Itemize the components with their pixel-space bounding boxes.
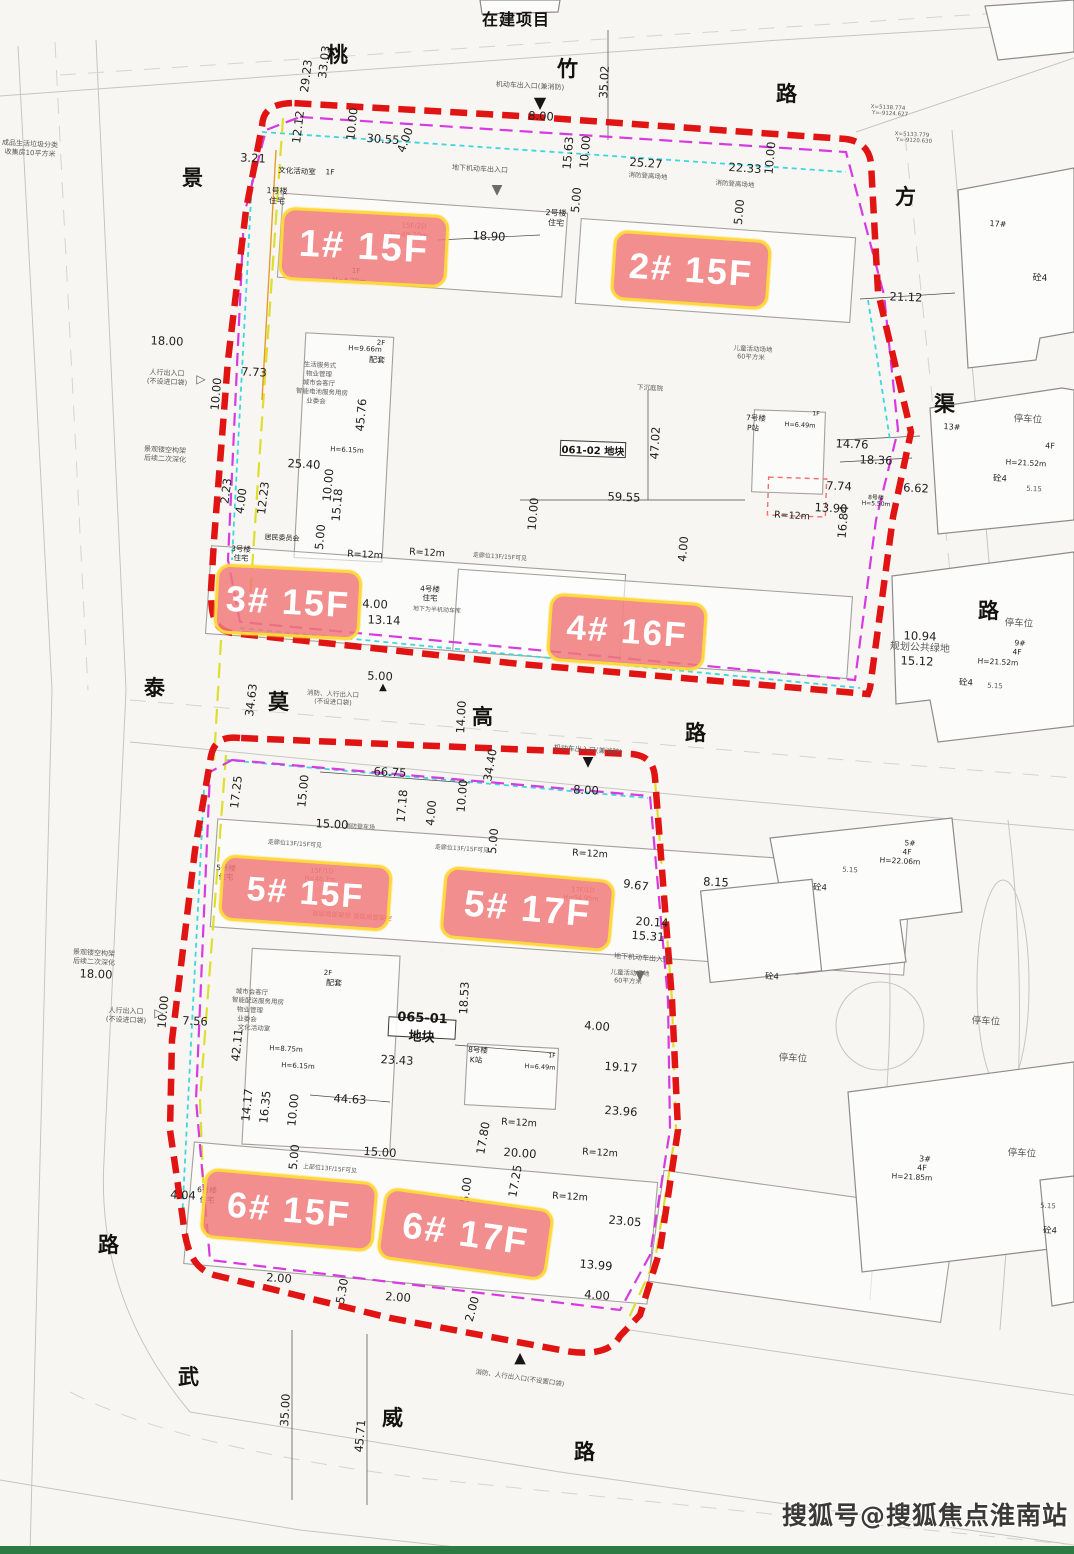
- annotation: 5.15: [842, 866, 858, 875]
- dimension-label: 4.00: [362, 597, 388, 612]
- annotation: 砼4: [1043, 1224, 1058, 1237]
- dimension-label: 10.00: [762, 141, 779, 175]
- dimension-label: 22.33: [728, 160, 762, 176]
- annotation: 4F: [902, 847, 912, 856]
- annotation: K站: [470, 1054, 483, 1066]
- annotation: P站: [747, 422, 760, 434]
- dimension-label: 59.55: [607, 489, 640, 504]
- dimension-label: 35.00: [277, 1393, 293, 1427]
- dimension-label: 10.00: [577, 135, 594, 169]
- annotation: 4F: [917, 1163, 927, 1172]
- building-label: 5# 17F: [439, 866, 616, 953]
- annotation: 停车位: [778, 1049, 807, 1064]
- dimension-label: R=12m: [774, 510, 810, 523]
- annotation: H=6.15m: [330, 445, 364, 455]
- annotation: 砼4: [765, 970, 780, 983]
- annotation: H=6.15m: [281, 1061, 315, 1071]
- annotation: 1F: [325, 167, 335, 176]
- annotation: 13#: [943, 422, 960, 432]
- road-label: 武: [178, 1361, 200, 1391]
- dimension-label: 5.00: [286, 1144, 303, 1171]
- dimension-label: 17.18: [394, 789, 411, 823]
- road-label: 路: [978, 595, 1000, 625]
- annotation: 配套: [326, 977, 343, 989]
- dimension-label: 7.74: [826, 479, 852, 494]
- dimension-label: 47.02: [647, 426, 663, 460]
- annotation: 停车位: [1004, 614, 1033, 629]
- dimension-label: 8.00: [573, 782, 599, 797]
- road-label: 方: [895, 181, 917, 211]
- annotation: 5.15: [1026, 485, 1042, 494]
- building-label: 5# 15F: [218, 854, 393, 932]
- dimension-label: R=12m: [347, 549, 383, 562]
- dimension-label: 23.96: [604, 1103, 638, 1119]
- dimension-label: 3.21: [240, 150, 266, 165]
- annotation: H=8.75m: [269, 1044, 303, 1054]
- dimension-label: 18.53: [456, 981, 472, 1015]
- dimension-label: R=12m: [552, 1191, 588, 1204]
- dimension-label: 18.90: [472, 228, 506, 244]
- site-plan-linework: [0, 0, 1074, 1554]
- building-label: 3# 15F: [213, 563, 362, 641]
- annotation: 砼4: [959, 676, 974, 689]
- annotation: 住宅: [548, 217, 565, 229]
- road-label: 泰: [144, 672, 166, 702]
- entrance-arrow-icon: ▷: [196, 373, 205, 385]
- dimension-label: 4.00: [584, 1287, 611, 1303]
- building-label: 2# 15F: [610, 230, 772, 311]
- dimension-label: R=12m: [582, 1147, 618, 1160]
- road-label: 在建项目: [482, 6, 550, 30]
- dimension-label: 4.00: [675, 536, 691, 563]
- dimension-label: 15.31: [631, 928, 665, 944]
- watermark: 搜狐号@搜狐焦点淮南站: [782, 1496, 1068, 1532]
- annotation: (不设进口袋): [314, 695, 352, 707]
- annotation: 下沉庭院: [637, 381, 663, 392]
- annotation: H=9.66m: [348, 344, 382, 354]
- annotation: 3#: [919, 1154, 931, 1164]
- annotation: 住宅: [233, 552, 249, 564]
- dimension-label: 19.17: [604, 1059, 638, 1075]
- annotation: 停车位: [971, 1012, 1000, 1027]
- dimension-label: 8.15: [703, 874, 729, 889]
- site-plan-canvas: 搜狐号@搜狐焦点淮南站 1# 15F2# 15F3# 15F4# 16F5# 1…: [0, 0, 1074, 1554]
- dimension-label: 15.18: [329, 488, 346, 522]
- bottom-green-bar: [0, 1546, 1074, 1554]
- annotation: 居民委员会: [264, 532, 299, 544]
- building-label: 6# 15F: [199, 1168, 378, 1253]
- entrance-arrow-icon: ▲: [379, 683, 387, 693]
- dimension-label: 15.63: [560, 136, 577, 170]
- entrance-arrow-icon: ▷: [154, 1007, 163, 1019]
- annotation: 文化活动室: [278, 165, 316, 178]
- annotation: 17#: [989, 219, 1006, 229]
- annotation: (不设进口袋): [106, 1014, 147, 1026]
- annotation: 砼4: [1032, 270, 1047, 284]
- road-label: 高: [472, 701, 494, 731]
- annotation: 60平方米: [737, 350, 765, 361]
- dimension-label: R=12m: [572, 848, 608, 861]
- annotation: 砼4: [813, 881, 828, 894]
- dimension-label: 16.84: [835, 505, 852, 539]
- dimension-label: 23.43: [380, 1052, 414, 1068]
- dimension-label: 66.75: [373, 764, 407, 780]
- road-label: 路: [98, 1229, 120, 1259]
- dimension-label: R=12m: [409, 547, 445, 560]
- dimension-label: 18.00: [79, 966, 112, 981]
- dimension-label: 10.00: [208, 377, 225, 411]
- dimension-label: 23.05: [608, 1213, 642, 1230]
- building-label: 1# 15F: [278, 207, 450, 289]
- dimension-label: 25.27: [629, 155, 663, 171]
- annotation: 住宅: [269, 195, 286, 207]
- dimension-label: 6.62: [903, 480, 929, 495]
- road-label: 渠: [934, 388, 956, 418]
- annotation: 配套: [369, 354, 386, 366]
- dimension-label: 5.00: [731, 199, 747, 226]
- annotation: 砼4: [993, 472, 1008, 485]
- dimension-label: 5.00: [485, 828, 501, 855]
- annotation: 停车位: [1007, 1144, 1036, 1159]
- plot-label: 061-02 地块: [560, 440, 627, 458]
- dimension-label: 15.00: [315, 816, 349, 832]
- paved-areas: [340, 250, 760, 1135]
- road-label: 路: [574, 1436, 596, 1466]
- road-label: 路: [776, 78, 798, 108]
- dimension-label: 10.00: [454, 779, 471, 813]
- road-label: 竹: [557, 53, 579, 83]
- entrance-arrow-icon: ▼: [534, 95, 546, 111]
- dimension-label: 5.00: [312, 524, 328, 551]
- annotation: H=5.50m: [861, 500, 890, 508]
- dimension-label: 25.40: [287, 456, 321, 472]
- road-label: 景: [182, 162, 204, 192]
- entrance-arrow-icon: ▼: [492, 183, 503, 197]
- annotation: H=6.49m: [784, 420, 816, 430]
- annotation: (不设进口袋): [147, 376, 188, 388]
- annotation: 5.15: [987, 682, 1003, 691]
- plot-label: 065-01 地块: [388, 1016, 457, 1040]
- entrance-arrow-icon: ▼: [583, 755, 594, 769]
- dimension-label: 14.00: [453, 700, 469, 734]
- road-label: 路: [685, 717, 707, 747]
- dimension-label: R=12m: [501, 1117, 537, 1130]
- dimension-label: 15.00: [363, 1144, 397, 1160]
- entrance-arrow-icon: ▲: [514, 1351, 526, 1366]
- annotation: 停车位: [1013, 410, 1042, 425]
- annotation: 住宅: [422, 592, 438, 604]
- annotation: H=6.49m: [524, 1062, 556, 1072]
- annotation: 5.15: [1040, 1202, 1056, 1211]
- annotation: 2F: [324, 969, 333, 977]
- annotation: 1F: [548, 1052, 556, 1059]
- dimension-label: 2.00: [266, 1270, 293, 1286]
- road-label: 莫: [268, 686, 290, 716]
- dimension-label: 18.36: [859, 452, 892, 467]
- annotation: 4F: [1045, 441, 1055, 450]
- dimension-label: 15.12: [900, 653, 933, 668]
- dimension-label: 20.00: [503, 1145, 537, 1161]
- dimension-label: 2.00: [385, 1289, 412, 1305]
- dimension-label: 45.76: [353, 398, 370, 432]
- annotation: 业委会: [306, 394, 326, 405]
- annotation: 消防登车场: [345, 821, 375, 832]
- dimension-label: 4.00: [423, 800, 439, 827]
- annotation: 5#: [904, 838, 916, 848]
- dimension-label: 10.00: [525, 497, 542, 531]
- annotation: 后续二次深化: [144, 453, 186, 465]
- dimension-label: 35.02: [596, 65, 612, 99]
- dimension-label: 4.00: [584, 1018, 611, 1034]
- entrance-arrow-icon: ▼: [635, 970, 645, 983]
- dimension-label: 4.04: [170, 1187, 196, 1202]
- dimension-label: 13.99: [579, 1257, 613, 1274]
- dimension-label: 14.76: [835, 436, 868, 451]
- dimension-label: 44.63: [333, 1091, 367, 1107]
- dimension-label: 7.73: [241, 364, 267, 379]
- dimension-label: 10.94: [903, 628, 936, 643]
- dimension-label: 5.00: [568, 187, 584, 214]
- dimension-label: 45.71: [352, 1419, 369, 1453]
- annotation: 1F: [812, 410, 820, 417]
- building-label: 4# 16F: [546, 593, 708, 672]
- dimension-label: 7.56: [182, 1013, 208, 1028]
- annotation: 9#: [1014, 638, 1026, 648]
- dimension-label: 13.14: [367, 612, 400, 627]
- annotation: 4F: [1012, 647, 1022, 656]
- dimension-label: 21.12: [889, 289, 922, 304]
- dimension-label: 18.00: [150, 333, 183, 348]
- road-label: 威: [382, 1402, 404, 1432]
